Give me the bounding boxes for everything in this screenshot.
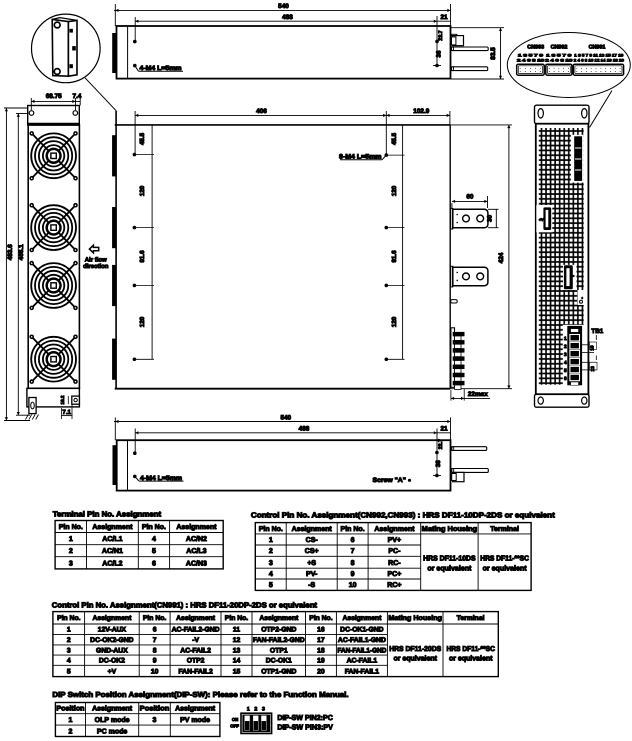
svg-text:Mating Housing: Mating Housing bbox=[422, 525, 477, 533]
svg-text:10.2: 10.2 bbox=[60, 395, 65, 404]
svg-text:OFF: OFF bbox=[230, 723, 239, 728]
svg-text:DIP Switch Position Assignment: DIP Switch Position Assignment(DIP-SW): … bbox=[52, 690, 348, 699]
svg-text:4: 4 bbox=[564, 360, 567, 366]
svg-text:8-M4 L=5mm: 8-M4 L=5mm bbox=[339, 153, 382, 160]
svg-text:30: 30 bbox=[486, 215, 493, 222]
svg-text:9: 9 bbox=[153, 658, 157, 665]
svg-text:38: 38 bbox=[436, 50, 443, 57]
svg-text:1 3 5 7 9: 1 3 5 7 9 bbox=[518, 54, 543, 58]
svg-text:1: 1 bbox=[67, 627, 71, 634]
svg-text:Assignment: Assignment bbox=[176, 615, 216, 622]
svg-text:22.7: 22.7 bbox=[438, 30, 444, 40]
svg-text:or equivalent: or equivalent bbox=[483, 563, 528, 572]
svg-text:3: 3 bbox=[564, 352, 567, 358]
svg-text:5: 5 bbox=[269, 582, 273, 589]
svg-text:AC/L2: AC/L2 bbox=[102, 559, 122, 567]
svg-text:1: 1 bbox=[564, 336, 567, 342]
svg-text:2: 2 bbox=[269, 548, 273, 555]
svg-text:3: 3 bbox=[67, 647, 71, 654]
svg-text:FAN-FAIL2: FAN-FAIL2 bbox=[178, 668, 213, 675]
svg-text:AC/N2: AC/N2 bbox=[186, 535, 207, 543]
svg-text:Assignment: Assignment bbox=[374, 525, 415, 533]
svg-text:3: 3 bbox=[269, 560, 273, 567]
svg-text:60: 60 bbox=[466, 193, 474, 200]
svg-text:10: 10 bbox=[349, 582, 357, 589]
svg-text:10: 10 bbox=[590, 345, 595, 351]
svg-text:+S: +S bbox=[307, 560, 316, 567]
svg-text:21: 21 bbox=[440, 426, 448, 433]
svg-text:Pin No.: Pin No. bbox=[225, 615, 249, 622]
svg-text:16: 16 bbox=[317, 627, 325, 634]
svg-text:4: 4 bbox=[67, 658, 71, 665]
svg-text:2: 2 bbox=[69, 728, 73, 735]
svg-text:direction: direction bbox=[83, 263, 109, 270]
svg-text:3: 3 bbox=[153, 717, 157, 724]
svg-text:Assignment: Assignment bbox=[175, 705, 216, 713]
svg-text:Assignment: Assignment bbox=[259, 615, 299, 622]
svg-text:4: 4 bbox=[269, 571, 273, 578]
svg-text:OTP1: OTP1 bbox=[270, 647, 288, 654]
svg-text:22max: 22max bbox=[468, 391, 488, 398]
svg-text:Screw "A": Screw "A" bbox=[373, 477, 407, 484]
svg-text:6: 6 bbox=[351, 537, 355, 544]
svg-text:CS+: CS+ bbox=[305, 548, 319, 555]
svg-text:102.9: 102.9 bbox=[413, 108, 429, 115]
svg-text:2: 2 bbox=[69, 548, 73, 555]
svg-text:AC/N3: AC/N3 bbox=[186, 559, 207, 567]
svg-text:Terminal: Terminal bbox=[457, 615, 485, 622]
svg-text:120: 120 bbox=[139, 316, 146, 327]
svg-text:466.1: 466.1 bbox=[18, 244, 25, 260]
svg-text:38: 38 bbox=[435, 460, 442, 467]
svg-text:68.75: 68.75 bbox=[46, 93, 62, 100]
svg-text:PC mode: PC mode bbox=[97, 727, 127, 735]
svg-text:CS-: CS- bbox=[306, 537, 319, 544]
svg-text:Assignment: Assignment bbox=[176, 523, 217, 531]
svg-text:FAN-FAIL1-GND: FAN-FAIL1-GND bbox=[337, 647, 386, 654]
svg-text:Pin No.: Pin No. bbox=[341, 525, 365, 533]
svg-text:CN991: CN991 bbox=[589, 44, 606, 50]
svg-text:AC-FAIL2: AC-FAIL2 bbox=[180, 647, 211, 654]
svg-text:DC-OK2: DC-OK2 bbox=[99, 658, 125, 665]
svg-text:Terminal Pin No. Assignment: Terminal Pin No. Assignment bbox=[53, 509, 162, 518]
svg-text:Assignment: Assignment bbox=[342, 615, 382, 622]
svg-text:406: 406 bbox=[256, 108, 267, 115]
svg-text:PV-: PV- bbox=[306, 571, 318, 578]
svg-text:-S: -S bbox=[308, 582, 315, 589]
svg-text:or equivalent: or equivalent bbox=[427, 563, 472, 572]
svg-text:Mating Housing: Mating Housing bbox=[388, 615, 442, 622]
svg-text:Control Pin No. Assignment(CN9: Control Pin No. Assignment(CN991) : HRS … bbox=[52, 600, 318, 609]
svg-text:20: 20 bbox=[317, 668, 325, 675]
svg-text:HRS DF11-10DS: HRS DF11-10DS bbox=[423, 554, 476, 563]
svg-text:FAN-FAIL1: FAN-FAIL1 bbox=[345, 668, 380, 675]
svg-text:Pin No.: Pin No. bbox=[259, 525, 283, 533]
svg-text:Pin No.: Pin No. bbox=[57, 615, 81, 622]
svg-text:17: 17 bbox=[317, 637, 325, 644]
svg-text:Assignment: Assignment bbox=[292, 525, 333, 533]
svg-text:120: 120 bbox=[139, 185, 146, 196]
svg-text:HRS DF11-20DS: HRS DF11-20DS bbox=[389, 645, 441, 653]
svg-text:6: 6 bbox=[153, 627, 157, 634]
svg-text:+V: +V bbox=[108, 668, 117, 675]
svg-text:10: 10 bbox=[151, 668, 159, 675]
svg-text:4-M4 L=5mm: 4-M4 L=5mm bbox=[140, 65, 182, 72]
svg-text:19: 19 bbox=[317, 658, 325, 665]
svg-text:4-M4 L=5mm: 4-M4 L=5mm bbox=[140, 475, 182, 482]
svg-text:-V: -V bbox=[192, 637, 199, 644]
svg-text:5: 5 bbox=[152, 548, 156, 555]
svg-text:Control Pin No. Assignment(CN9: Control Pin No. Assignment(CN992,CN993) … bbox=[251, 510, 555, 519]
svg-text:PV mode: PV mode bbox=[180, 716, 210, 724]
svg-text:DC-OK1: DC-OK1 bbox=[266, 658, 292, 665]
svg-text:FAN-FAIL2-GND: FAN-FAIL2-GND bbox=[253, 637, 305, 644]
svg-text:7.1: 7.1 bbox=[62, 409, 71, 416]
svg-text:1: 1 bbox=[69, 717, 73, 724]
svg-text:Assignment: Assignment bbox=[92, 615, 132, 622]
svg-text:6: 6 bbox=[564, 376, 567, 382]
svg-text:120: 120 bbox=[391, 185, 398, 196]
svg-text:2 4 6 8 10: 2 4 6 8 10 bbox=[545, 58, 572, 62]
svg-text:Assignment: Assignment bbox=[92, 523, 133, 531]
svg-text:CN993: CN993 bbox=[527, 44, 544, 50]
svg-text:18: 18 bbox=[317, 647, 325, 654]
svg-text:7: 7 bbox=[351, 548, 355, 555]
svg-text:2 4 6 8 10: 2 4 6 8 10 bbox=[517, 58, 544, 62]
svg-text:1 3 5 7 9: 1 3 5 7 9 bbox=[546, 54, 571, 58]
svg-text:Position: Position bbox=[56, 705, 84, 713]
svg-text:RC-: RC- bbox=[388, 560, 401, 567]
svg-text:DIP-SW PIN2:PC: DIP-SW PIN2:PC bbox=[277, 713, 333, 722]
svg-text:540: 540 bbox=[278, 3, 289, 10]
svg-text:HRS DF11-**SC: HRS DF11-**SC bbox=[480, 554, 529, 563]
svg-text:OTP1-GND: OTP1-GND bbox=[261, 668, 296, 675]
svg-text:22.7: 22.7 bbox=[438, 439, 444, 449]
svg-text:45.5: 45.5 bbox=[391, 132, 398, 145]
svg-text:OTP2: OTP2 bbox=[187, 658, 205, 665]
svg-text:PC+: PC+ bbox=[387, 571, 401, 578]
svg-text:3: 3 bbox=[69, 560, 73, 567]
svg-text:DIP-SW PIN3:PV: DIP-SW PIN3:PV bbox=[277, 722, 333, 731]
svg-text:TB1: TB1 bbox=[591, 328, 603, 335]
svg-text:AC-FAIL1: AC-FAIL1 bbox=[347, 658, 378, 665]
svg-text:12V-AUX: 12V-AUX bbox=[98, 627, 127, 634]
svg-text:91.6: 91.6 bbox=[139, 250, 146, 263]
svg-text:or equivalent: or equivalent bbox=[449, 655, 493, 663]
svg-text:AC/N1: AC/N1 bbox=[102, 547, 123, 555]
svg-text:21: 21 bbox=[440, 14, 448, 21]
svg-text:483.6: 483.6 bbox=[7, 244, 14, 260]
svg-text:OTP2-GND: OTP2-GND bbox=[261, 627, 296, 634]
svg-text:Assignment: Assignment bbox=[92, 705, 133, 713]
svg-text:1: 1 bbox=[247, 706, 250, 712]
svg-text:Pin No.: Pin No. bbox=[59, 523, 83, 531]
svg-text:ON: ON bbox=[232, 717, 238, 722]
svg-text:6: 6 bbox=[152, 560, 156, 567]
svg-text:PV+: PV+ bbox=[388, 537, 401, 544]
svg-text:11: 11 bbox=[233, 627, 240, 634]
svg-text:13: 13 bbox=[590, 366, 595, 372]
svg-text:15: 15 bbox=[233, 668, 241, 675]
svg-text:or equivalent: or equivalent bbox=[393, 655, 437, 663]
svg-text:HRS DF11-**SC: HRS DF11-**SC bbox=[446, 645, 495, 653]
svg-text:AC-FAIL1-GND: AC-FAIL1-GND bbox=[338, 637, 386, 644]
svg-text:8: 8 bbox=[153, 647, 157, 654]
svg-text:14: 14 bbox=[233, 658, 241, 665]
svg-text:424: 424 bbox=[498, 252, 505, 263]
svg-text:9: 9 bbox=[351, 571, 355, 578]
svg-text:AC-FAIL2-GND: AC-FAIL2-GND bbox=[172, 627, 220, 634]
svg-text:13: 13 bbox=[233, 647, 241, 654]
svg-text:2: 2 bbox=[254, 706, 257, 712]
svg-text:540: 540 bbox=[280, 414, 291, 421]
svg-text:Air flow: Air flow bbox=[85, 256, 107, 263]
svg-text:Pin No.: Pin No. bbox=[142, 523, 166, 531]
svg-text:GND-AUX: GND-AUX bbox=[96, 647, 128, 654]
svg-text:1: 1 bbox=[69, 536, 73, 543]
svg-text:5: 5 bbox=[67, 668, 71, 675]
svg-text:1 3 5 7 9 11 13 15 17 19: 1 3 5 7 9 11 13 15 17 19 bbox=[574, 54, 623, 58]
svg-text:AC/L1: AC/L1 bbox=[102, 535, 122, 543]
svg-text:RC+: RC+ bbox=[387, 582, 401, 589]
svg-text:8: 8 bbox=[351, 560, 355, 567]
svg-text:45.5: 45.5 bbox=[139, 132, 146, 145]
svg-text:12: 12 bbox=[233, 637, 241, 644]
svg-text:OLP mode: OLP mode bbox=[95, 716, 130, 724]
svg-text:PC-: PC- bbox=[388, 548, 401, 555]
svg-text:2 4 6 8 10 12 14 16 18 20: 2 4 6 8 10 12 14 16 18 20 bbox=[574, 58, 624, 62]
svg-text:2: 2 bbox=[67, 637, 71, 644]
svg-text:AC/L3: AC/L3 bbox=[186, 547, 206, 555]
svg-text:+V: +V bbox=[539, 218, 544, 222]
svg-text:1: 1 bbox=[269, 537, 273, 544]
svg-text:Pin No.: Pin No. bbox=[309, 615, 333, 622]
svg-text:2: 2 bbox=[564, 344, 567, 350]
svg-text:Position: Position bbox=[140, 705, 170, 713]
svg-text:Terminal: Terminal bbox=[490, 525, 519, 533]
svg-text:DC-OK2-GND: DC-OK2-GND bbox=[90, 637, 134, 644]
svg-text:CN992: CN992 bbox=[551, 44, 568, 50]
svg-text:3: 3 bbox=[262, 706, 265, 712]
svg-text:488: 488 bbox=[299, 426, 310, 433]
svg-text:Pin No.: Pin No. bbox=[143, 615, 167, 622]
svg-text:7: 7 bbox=[153, 637, 157, 644]
svg-text:4: 4 bbox=[152, 536, 156, 543]
svg-text:488: 488 bbox=[282, 14, 293, 21]
svg-text:5: 5 bbox=[564, 368, 567, 374]
svg-text:83.5: 83.5 bbox=[490, 47, 497, 60]
svg-text:DC-OK1-GND: DC-OK1-GND bbox=[340, 627, 384, 634]
svg-text:91.6: 91.6 bbox=[391, 250, 398, 263]
svg-text:120: 120 bbox=[391, 316, 398, 327]
